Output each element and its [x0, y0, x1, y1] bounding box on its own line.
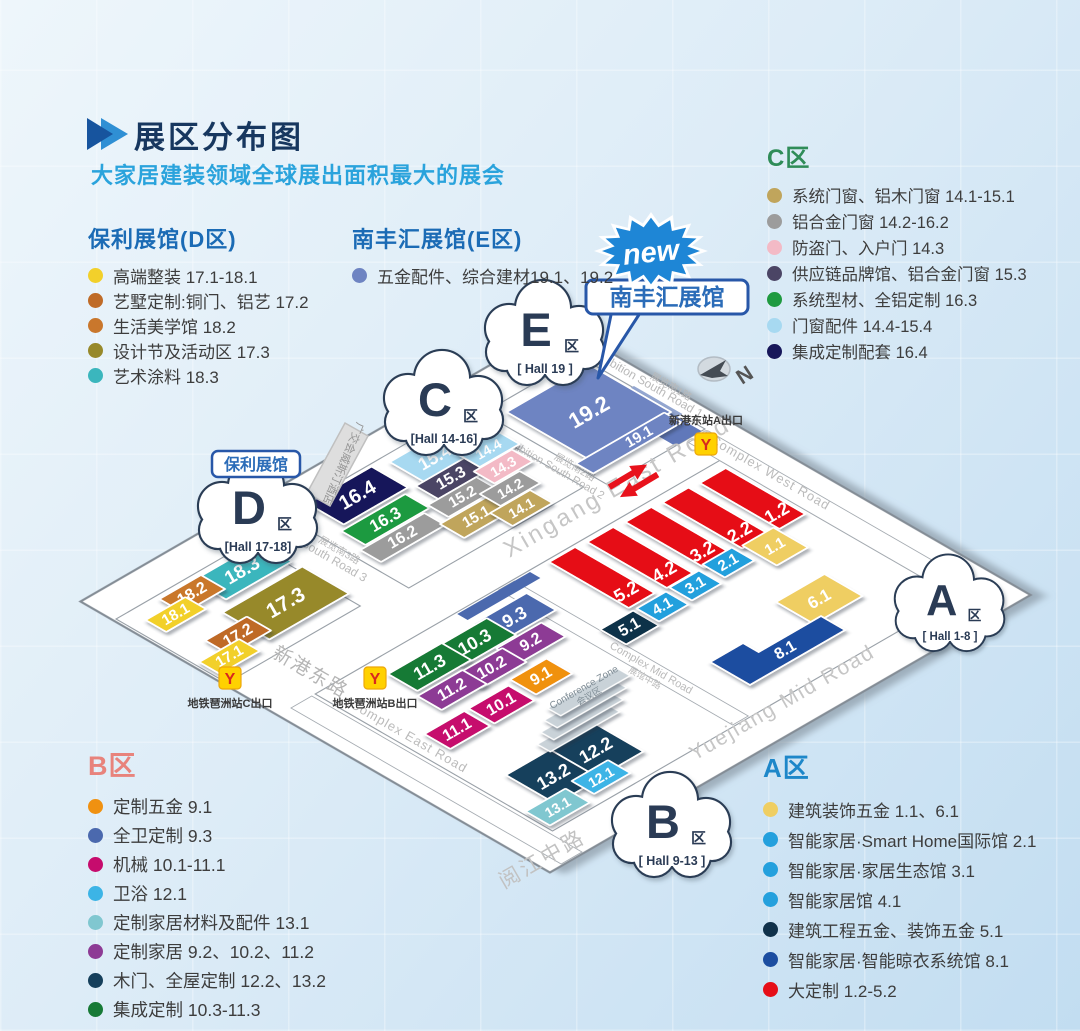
legend-item: 木门、全屋定制 12.2、13.2: [88, 966, 326, 995]
legend-dot-icon: [763, 952, 778, 967]
legend-item: 集成定制 10.3-11.3: [88, 995, 326, 1024]
svg-text:Y: Y: [370, 671, 381, 688]
zone-suffix: 区: [967, 608, 981, 623]
zone-suffix: 区: [564, 338, 579, 355]
legend-item-label: 供应链品牌馆、铝合金门窗 15.3: [792, 261, 1027, 285]
zone-letter: C: [418, 373, 452, 426]
legend-dot-icon: [767, 188, 782, 203]
legend-dot-icon: [763, 802, 778, 817]
title-arrows-icon: [86, 117, 132, 151]
legend-d-title: 保利展馆(D区): [88, 222, 309, 254]
legend-item: 系统门窗、铝木门窗 14.1-15.1: [767, 182, 1027, 208]
legend-dot-icon: [767, 266, 782, 281]
legend-item: 艺墅定制:铜门、铝艺 17.2: [88, 288, 309, 313]
metro-exit-label: 新港东站A出口: [669, 413, 743, 427]
legend-item: 卫浴 12.1: [88, 879, 326, 908]
legend-dot-icon: [88, 886, 103, 901]
zone-letter: A: [926, 577, 957, 625]
legend-dot-icon: [88, 1002, 103, 1017]
legend-dot-icon: [88, 944, 103, 959]
legend-item: 防盗门、入户门 14.3: [767, 234, 1027, 260]
legend-e-title: 南丰汇展馆(E区): [352, 222, 613, 254]
legend-item-label: 铝合金门窗 14.2-16.2: [792, 209, 949, 233]
legend-item-label: 艺术涂料 18.3: [113, 363, 219, 388]
legend-item: 大定制 1.2-5.2: [763, 974, 1036, 1004]
legend-b-items: 定制五金 9.1全卫定制 9.3机械 10.1-11.1卫浴 12.1定制家居材…: [88, 792, 326, 1024]
zone-letter: B: [646, 795, 680, 848]
svg-text:南丰汇展馆: 南丰汇展馆: [610, 284, 725, 310]
legend-item-label: 建筑装饰五金 1.1、6.1: [788, 797, 959, 822]
zone-cloud-C: C区[Hall 14-16]: [385, 351, 502, 454]
legend-e-items: 五金配件、综合建材19.1、19.2: [352, 263, 613, 288]
zone-suffix: 区: [277, 516, 292, 533]
legend-item-label: 系统门窗、铝木门窗 14.1-15.1: [792, 183, 1015, 207]
legend-dot-icon: [767, 292, 782, 307]
legend-item: 铝合金门窗 14.2-16.2: [767, 208, 1027, 234]
legend-dot-icon: [352, 268, 367, 283]
legend-item-label: 智能家居·Smart Home国际馆 2.1: [788, 827, 1036, 852]
legend-item: 智能家居·智能晾衣系统馆 8.1: [763, 944, 1036, 974]
poly-pavilion-callout: 保利展馆: [212, 451, 300, 477]
zone-hall-range: [ Hall 1-8 ]: [923, 631, 978, 643]
legend-dot-icon: [767, 344, 782, 359]
legend-item-label: 防盗门、入户门 14.3: [792, 235, 944, 259]
legend-d-items: 高端整装 17.1-18.1艺墅定制:铜门、铝艺 17.2生活美学馆 18.2设…: [88, 263, 309, 388]
svg-text:Y: Y: [225, 671, 236, 688]
compass-n-label: N: [732, 362, 757, 390]
legend-dot-icon: [88, 857, 103, 872]
legend-c-title: C区: [767, 138, 1027, 173]
legend-dot-icon: [763, 982, 778, 997]
legend-item: 全卫定制 9.3: [88, 821, 326, 850]
legend-item-label: 生活美学馆 18.2: [113, 313, 236, 338]
legend-item-label: 定制家居材料及配件 13.1: [113, 910, 309, 935]
legend-item: 定制家居材料及配件 13.1: [88, 908, 326, 937]
legend-item-label: 智能家居·家居生态馆 3.1: [788, 857, 975, 882]
legend-item: 智能家居馆 4.1: [763, 884, 1036, 914]
legend-item: 系统型材、全铝定制 16.3: [767, 286, 1027, 312]
legend-item-label: 建筑工程五金、装饰五金 5.1: [788, 917, 1003, 942]
legend-item-label: 定制家居 9.2、10.2、11.2: [113, 939, 314, 964]
legend-dot-icon: [88, 293, 103, 308]
legend-item: 设计节及活动区 17.3: [88, 338, 309, 363]
legend-dot-icon: [88, 828, 103, 843]
metro-exit-label: 地铁琶洲站B出口: [333, 696, 418, 710]
legend-a-items: 建筑装饰五金 1.1、6.1智能家居·Smart Home国际馆 2.1智能家居…: [763, 794, 1036, 1004]
zone-hall-range: [Hall 14-16]: [411, 432, 478, 446]
legend-item: 五金配件、综合建材19.1、19.2: [352, 263, 613, 288]
legend-dot-icon: [767, 214, 782, 229]
legend-item: 机械 10.1-11.1: [88, 850, 326, 879]
legend-item: 定制五金 9.1: [88, 792, 326, 821]
legend-item-label: 门窗配件 14.4-15.4: [792, 313, 932, 337]
legend-item: 智能家居·家居生态馆 3.1: [763, 854, 1036, 884]
legend-dot-icon: [88, 343, 103, 358]
page-subtitle: 大家居建装领域全球展出面积最大的展会: [91, 158, 505, 190]
legend-item-label: 艺墅定制:铜门、铝艺 17.2: [113, 288, 309, 313]
zone-letter: D: [232, 481, 266, 534]
legend-item: 智能家居·Smart Home国际馆 2.1: [763, 824, 1036, 854]
legend-item-label: 五金配件、综合建材19.1、19.2: [377, 263, 613, 288]
metro-logo-icon: Y: [219, 667, 241, 689]
legend-dot-icon: [763, 922, 778, 937]
legend-item: 定制家居 9.2、10.2、11.2: [88, 937, 326, 966]
legend-item-label: 全卫定制 9.3: [113, 823, 212, 848]
legend-item: 艺术涂料 18.3: [88, 363, 309, 388]
metro-exit-label: 地铁琶洲站C出口: [188, 696, 273, 710]
legend-c-items: 系统门窗、铝木门窗 14.1-15.1铝合金门窗 14.2-16.2防盗门、入户…: [767, 182, 1027, 364]
legend-item-label: 木门、全屋定制 12.2、13.2: [113, 968, 326, 993]
metro-logo-icon: Y: [364, 667, 386, 689]
legend-dot-icon: [88, 973, 103, 988]
svg-text:Y: Y: [701, 437, 712, 454]
legend-item: 建筑工程五金、装饰五金 5.1: [763, 914, 1036, 944]
legend-a-zone: A区 建筑装饰五金 1.1、6.1智能家居·Smart Home国际馆 2.1智…: [763, 748, 1036, 1004]
new-badge-label: new: [621, 234, 683, 272]
zone-suffix: 区: [691, 830, 706, 847]
page-title: 展区分布图: [134, 112, 304, 157]
legend-dot-icon: [763, 832, 778, 847]
legend-dot-icon: [767, 318, 782, 333]
legend-item: 供应链品牌馆、铝合金门窗 15.3: [767, 260, 1027, 286]
legend-item-label: 智能家居馆 4.1: [788, 887, 901, 912]
legend-item-label: 设计节及活动区 17.3: [113, 338, 270, 363]
legend-c-zone: C区 系统门窗、铝木门窗 14.1-15.1铝合金门窗 14.2-16.2防盗门…: [767, 138, 1027, 364]
legend-item-label: 定制五金 9.1: [113, 794, 212, 819]
legend-item: 集成定制配套 16.4: [767, 338, 1027, 364]
legend-item-label: 机械 10.1-11.1: [113, 852, 226, 877]
svg-text:保利展馆: 保利展馆: [223, 455, 288, 474]
exhibition-map-poster: Xingang East Road新港东路Yuejiang Mid Road阅江…: [0, 0, 1080, 1031]
legend-item: 建筑装饰五金 1.1、6.1: [763, 794, 1036, 824]
zone-hall-range: [ Hall 19 ]: [517, 362, 573, 376]
legend-dot-icon: [88, 368, 103, 383]
legend-dot-icon: [767, 240, 782, 255]
zone-hall-range: [ Hall 9-13 ]: [639, 854, 706, 868]
legend-item: 门窗配件 14.4-15.4: [767, 312, 1027, 338]
legend-item-label: 系统型材、全铝定制 16.3: [792, 287, 977, 311]
legend-dot-icon: [88, 799, 103, 814]
legend-dot-icon: [88, 915, 103, 930]
zone-hall-range: [Hall 17-18]: [225, 540, 292, 554]
legend-item: 生活美学馆 18.2: [88, 313, 309, 338]
legend-b-title: B区: [88, 744, 326, 783]
legend-item-label: 卫浴 12.1: [113, 881, 187, 906]
zone-suffix: 区: [463, 408, 478, 425]
legend-a-title: A区: [763, 748, 1036, 785]
legend-dot-icon: [88, 318, 103, 333]
legend-dot-icon: [763, 892, 778, 907]
legend-d-pavilion: 保利展馆(D区) 高端整装 17.1-18.1艺墅定制:铜门、铝艺 17.2生活…: [88, 222, 309, 388]
metro-logo-icon: Y: [695, 433, 717, 455]
legend-item: 高端整装 17.1-18.1: [88, 263, 309, 288]
legend-item-label: 高端整装 17.1-18.1: [113, 263, 258, 288]
compass-icon: N: [698, 357, 757, 389]
legend-item-label: 大定制 1.2-5.2: [788, 977, 897, 1002]
legend-item-label: 集成定制配套 16.4: [792, 339, 928, 363]
legend-dot-icon: [88, 268, 103, 283]
legend-dot-icon: [763, 862, 778, 877]
legend-item-label: 集成定制 10.3-11.3: [113, 997, 261, 1022]
legend-e-pavilion: 南丰汇展馆(E区) 五金配件、综合建材19.1、19.2: [352, 222, 613, 288]
zone-letter: E: [520, 303, 551, 356]
legend-item-label: 智能家居·智能晾衣系统馆 8.1: [788, 947, 1009, 972]
legend-b-zone: B区 定制五金 9.1全卫定制 9.3机械 10.1-11.1卫浴 12.1定制…: [88, 744, 326, 1024]
